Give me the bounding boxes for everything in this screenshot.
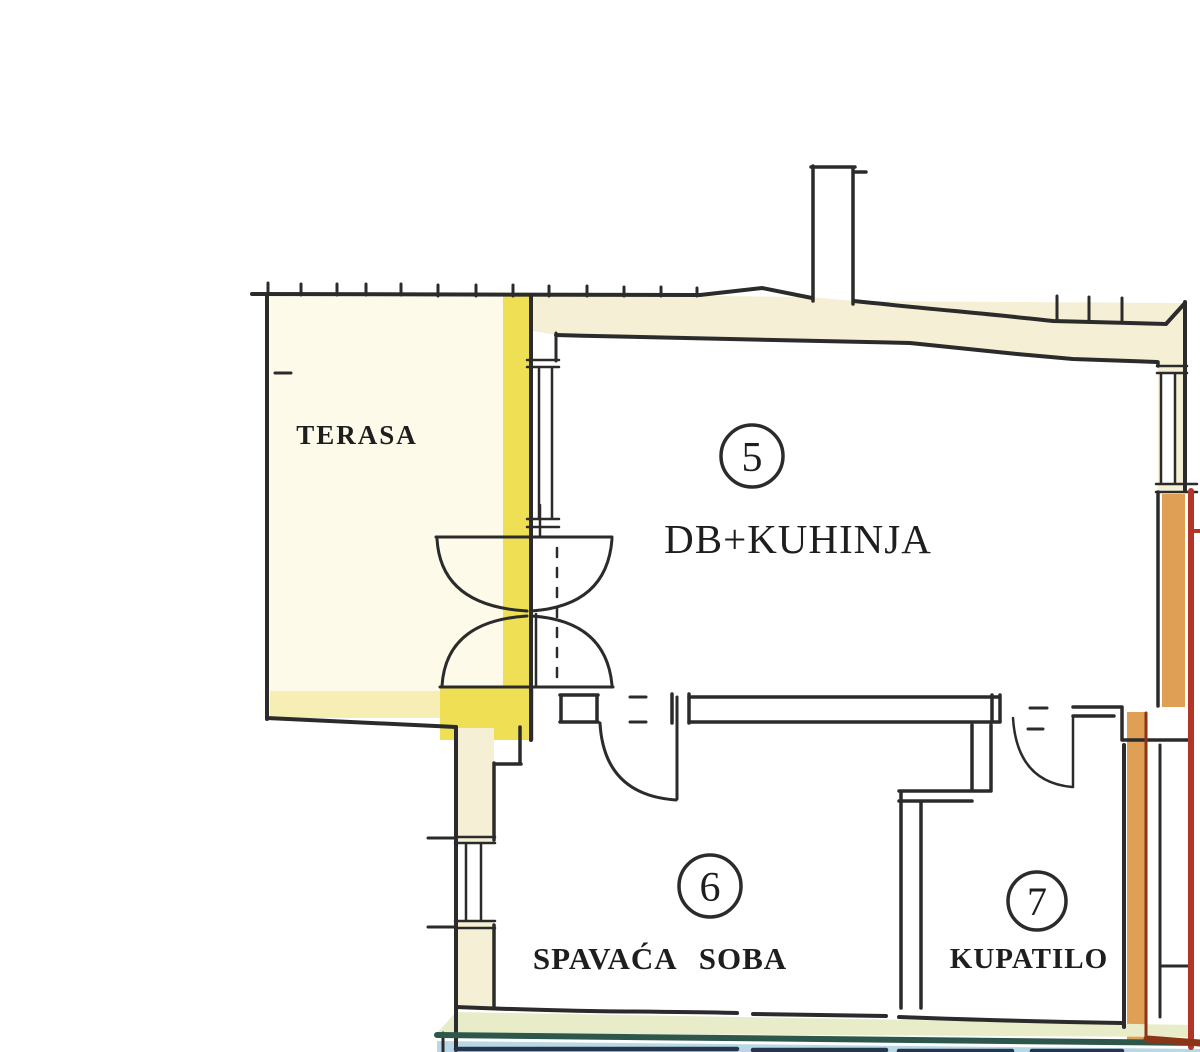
room-7-number: 7 <box>1027 879 1047 924</box>
bedroom-door-jambs <box>672 694 689 723</box>
bedroom-window-glass-fill <box>458 844 494 920</box>
bedroom-door-dashes <box>630 697 646 722</box>
lower-floor-maroon-corner <box>1147 1039 1200 1043</box>
neighbor-left-wall <box>1160 745 1190 1017</box>
terrace-yellow-band-vertical <box>503 296 532 694</box>
floor-plan-drawing: 5 6 7 TERASA DB+KUHINJA SPAVAĆA SOBA KUP… <box>0 0 1200 1052</box>
bathroom-label: KUPATILO <box>950 943 1108 975</box>
bedroom-inner-left-wall <box>494 727 521 1006</box>
terrace-floor-wash <box>270 296 503 718</box>
bedroom-door-arc <box>600 723 676 800</box>
bedroom-window-ticks <box>428 838 455 927</box>
neighbor-orange-band-lower <box>1127 712 1146 1042</box>
floor-plan-page: 5 6 7 TERASA DB+KUHINJA SPAVAĆA SOBA KUP… <box>0 0 1200 1052</box>
mid-wall-left-block <box>560 695 598 722</box>
terrace-label: TERASA <box>296 420 418 450</box>
neighbor-orange-band-upper <box>1162 494 1185 707</box>
terrace-bottom-wall <box>267 718 456 727</box>
mid-wall-lines <box>689 697 999 722</box>
door-arc-top-right <box>531 539 612 611</box>
living-room-label: DB+KUHINJA <box>664 516 932 562</box>
room-6-number: 6 <box>700 865 721 911</box>
chimney <box>811 166 866 304</box>
room-5-number: 5 <box>742 435 763 481</box>
highlight-fills <box>270 294 1200 1052</box>
right-window-glass-fill <box>1162 374 1174 483</box>
door-arc-bottom-right <box>532 616 612 685</box>
bedroom-label: SPAVAĆA SOBA <box>533 941 787 976</box>
bath-door-jamb <box>992 695 1000 722</box>
room-number-badges: 5 6 7 <box>679 425 1066 930</box>
bath-door-dashes <box>1028 708 1047 729</box>
